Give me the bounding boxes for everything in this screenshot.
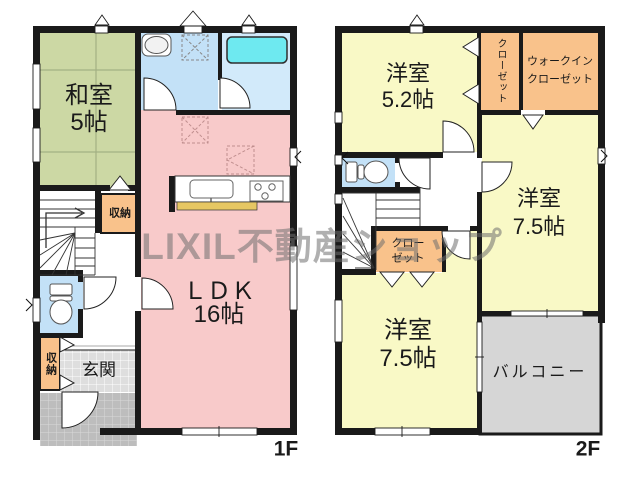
counter-edge xyxy=(177,202,257,210)
toilet-2f xyxy=(346,161,388,183)
bedroom75-right-label: 洋室 xyxy=(517,188,561,210)
window xyxy=(335,300,342,342)
toilet-1f-door xyxy=(84,277,116,309)
floor2-tag: 2F xyxy=(576,439,601,460)
window xyxy=(33,128,40,162)
toilet-1f xyxy=(50,284,72,324)
bedroom52-size-label: 5.2帖 xyxy=(382,89,435,111)
bedroom75-bottom-size-label: 7.5帖 xyxy=(379,347,436,371)
bathtub xyxy=(227,37,287,63)
window xyxy=(182,428,257,435)
balcony-label: バルコニー xyxy=(493,365,588,381)
walkin-closet-label-1: ウォークイン xyxy=(527,57,593,68)
window xyxy=(290,148,297,166)
window-arrow xyxy=(26,299,32,311)
entry-storage-label: 収納 xyxy=(45,352,56,376)
stove xyxy=(250,181,283,201)
vent-flag xyxy=(410,15,424,25)
vent-notch xyxy=(410,26,423,33)
window xyxy=(335,155,342,165)
vent-notch xyxy=(95,26,108,33)
walkin-closet-room xyxy=(523,33,598,110)
kitchen-sink xyxy=(190,180,233,198)
vent-notch xyxy=(242,26,255,33)
window xyxy=(33,298,40,322)
watermark: LIXIL不動産ショップ xyxy=(141,216,502,270)
bedroom75-right-room xyxy=(482,115,598,311)
bedroom75-bottom-label: 洋室 xyxy=(384,319,432,343)
genkan-label: 玄関 xyxy=(82,362,116,379)
walkin-closet-label-2: クローゼット xyxy=(527,75,593,86)
stairs-1f xyxy=(40,200,95,275)
vent-flag xyxy=(95,15,109,25)
bedroom52-label: 洋室 xyxy=(386,63,430,85)
closet-top-label: クローゼット xyxy=(495,38,505,104)
window xyxy=(335,194,342,204)
floor1-tag: 1F xyxy=(274,439,299,460)
roof-vent xyxy=(180,11,206,26)
washitsu-label: 和室 xyxy=(65,84,113,108)
washitsu-size-label: 5帖 xyxy=(70,111,107,135)
ldk-size-label: 16帖 xyxy=(194,303,245,327)
vanity-sink xyxy=(142,34,171,56)
bedroom75-right-size-label: 7.5帖 xyxy=(513,216,566,238)
vent-notch xyxy=(184,26,202,33)
window xyxy=(33,64,40,109)
window xyxy=(335,112,342,123)
vent-flag xyxy=(242,15,256,25)
window xyxy=(375,428,430,435)
toilet-2f-door xyxy=(399,158,430,189)
stair-storage-label: 収納 xyxy=(109,209,131,220)
floorplan: 和室 5帖 ＬＤＫ 16帖 収納 収納 玄関 1F 洋室 5.2帖 クローゼット… xyxy=(0,0,637,480)
